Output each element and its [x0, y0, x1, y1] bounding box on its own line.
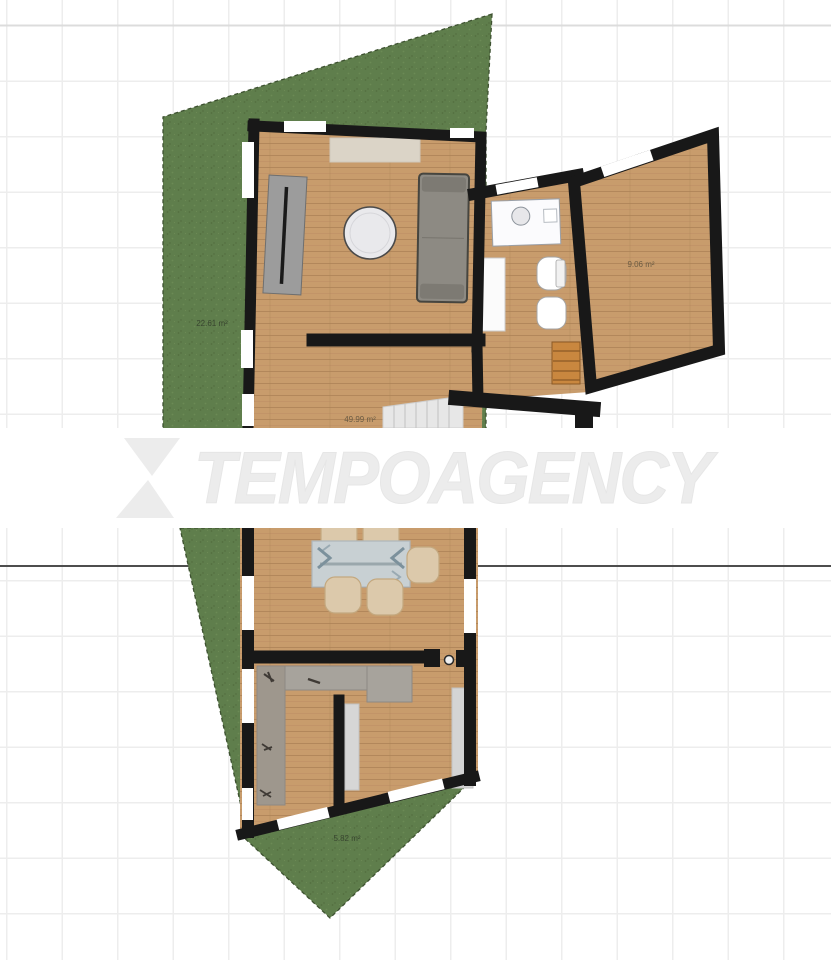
door-handle	[445, 656, 454, 665]
window-upper-left-3	[242, 394, 254, 426]
bathroom-sink	[544, 209, 557, 222]
attic-ladder	[552, 342, 580, 384]
wall-stairwell-corner	[575, 407, 593, 428]
dining-chair	[407, 547, 439, 583]
sofa	[417, 174, 469, 303]
closet-door	[345, 704, 359, 790]
window-living-top	[284, 121, 326, 132]
round-table	[344, 207, 396, 259]
rug	[330, 138, 420, 162]
window-lower-left-1	[242, 576, 254, 630]
kitchen-counter-corner	[367, 666, 412, 702]
floorplan-canvas: 22.61 m² 9.06 m² 49.99 m² 5.82 m² TEMPOA…	[0, 0, 831, 960]
window-upper-left-2	[241, 330, 253, 368]
toilet-tank	[556, 260, 565, 287]
area-label-garden-bottom: 5.82 m²	[333, 834, 360, 843]
window-lower-left-2	[242, 669, 254, 723]
kitchen-counter-left	[257, 666, 285, 805]
area-label-garden-top: 22.61 m²	[196, 319, 228, 328]
bathroom-door-panel	[481, 258, 505, 331]
wall-stub	[424, 649, 440, 667]
shower-tray	[491, 199, 561, 246]
area-label-side-room: 9.06 m²	[627, 260, 654, 269]
door-jamb	[456, 650, 470, 667]
tv-sideboard	[263, 175, 307, 295]
dining-chair	[367, 579, 403, 615]
window-upper-left-1	[242, 142, 254, 198]
window-lower-right	[464, 579, 476, 633]
shower-drain	[511, 207, 530, 226]
watermark-text: TEMPOAGENCY	[194, 442, 711, 515]
bidet	[537, 297, 566, 329]
garden-plot-lower-left	[180, 528, 248, 838]
watermark-band: TEMPOAGENCY	[0, 428, 831, 528]
window-lower-left-3	[242, 788, 253, 820]
window-living-top-2	[450, 128, 474, 138]
area-label-main-room: 49.99 m²	[344, 415, 376, 424]
dining-chair	[325, 577, 361, 613]
hourglass-x-logo-icon	[112, 438, 180, 518]
